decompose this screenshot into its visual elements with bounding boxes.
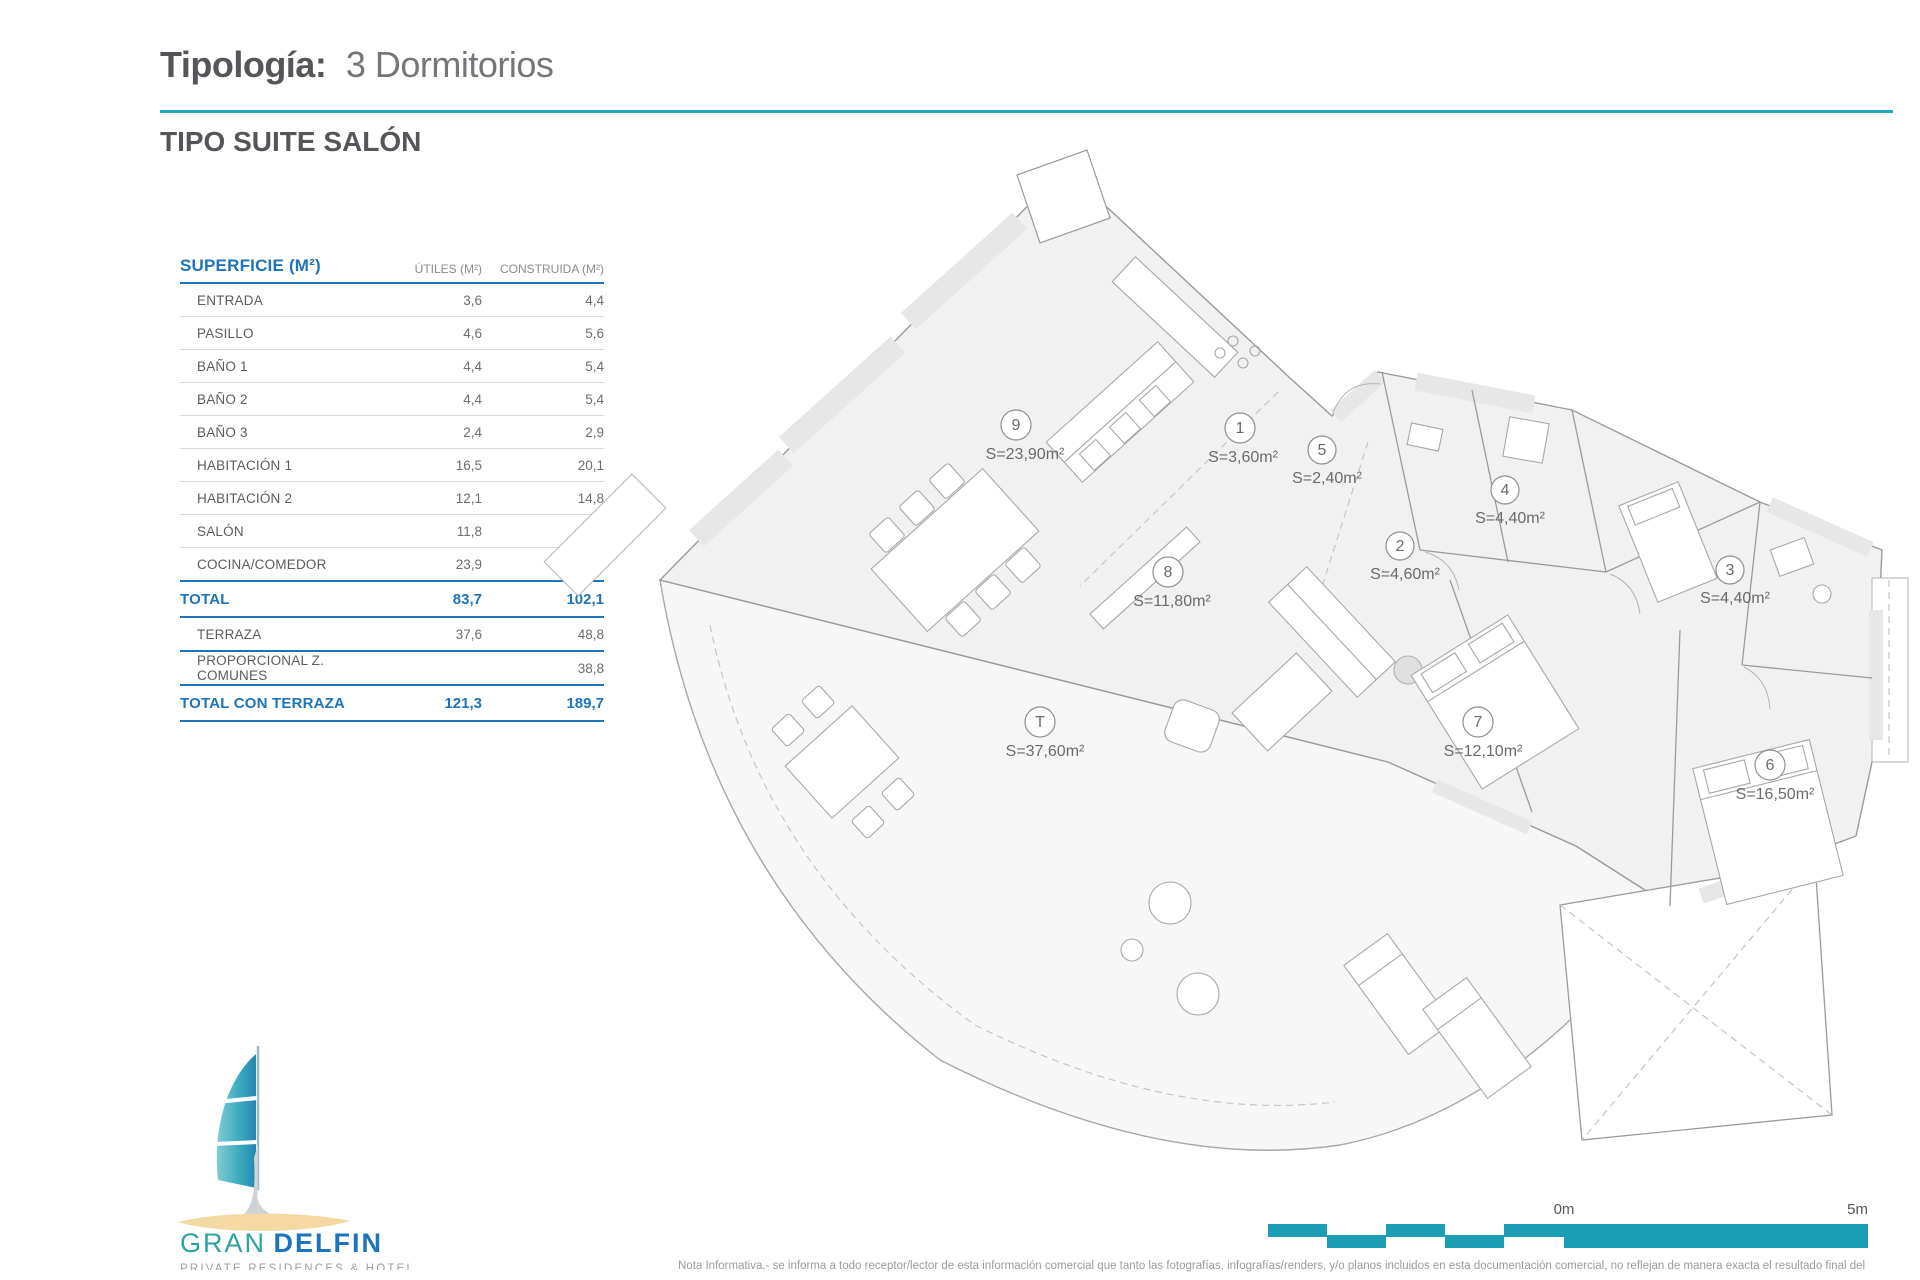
terrace-chair	[1149, 882, 1191, 924]
room-area: S=12,10m²	[1444, 743, 1523, 760]
brochure-page: { "header": { "title_label": "Tipología:…	[0, 0, 1920, 1280]
terrace-side-table	[1121, 939, 1143, 961]
left-ledge	[544, 474, 666, 596]
page-title-value: 3 Dormitorios	[346, 44, 554, 85]
room-number: T	[1035, 714, 1045, 731]
scale-five-label: 5m	[1847, 1201, 1868, 1218]
room-area: S=11,80m²	[1133, 593, 1211, 610]
page-title: Tipología: 3 Dormitorios	[160, 44, 553, 86]
logo-gran: GRAN	[180, 1228, 266, 1258]
scale-zero-label: 0m	[1554, 1201, 1575, 1218]
room-number: 9	[1012, 417, 1021, 434]
room-number: 7	[1474, 714, 1483, 731]
gran-delfin-logo: GRAN DELFIN PRIVATE RESIDENCES & HOTEL	[150, 1040, 450, 1270]
page-subtitle: TIPO SUITE SALÓN	[160, 126, 421, 158]
page-title-label: Tipología:	[160, 44, 326, 85]
logo-delfin: DELFIN	[274, 1228, 384, 1258]
logo-wordmark: GRAN DELFIN	[180, 1228, 383, 1258]
sail-tower-icon	[178, 1046, 350, 1231]
x-box	[1560, 862, 1832, 1140]
room-number: 5	[1318, 442, 1327, 459]
room-area: S=23,90m²	[986, 446, 1065, 463]
room-area: S=4,40m²	[1475, 510, 1545, 527]
room-area: S=3,60m²	[1208, 449, 1278, 466]
room-area: S=4,60m²	[1370, 566, 1440, 583]
scale-bar-segments	[1268, 1224, 1868, 1248]
floor-plan: 9 S=23,90m² 1 S=3,60m² 5 S=2,40m² 4 S=4,…	[520, 110, 1920, 1170]
room-area: S=37,60m²	[1006, 743, 1085, 760]
room-area: S=2,40m²	[1292, 470, 1362, 487]
room-number: 8	[1164, 564, 1173, 581]
room-area: S=16,50m²	[1736, 786, 1815, 803]
scale-bar: 0m 5m	[1180, 1198, 1890, 1268]
disclaimer-note: Nota Informativa.- se informa a todo rec…	[678, 1260, 1920, 1272]
room-number: 3	[1726, 562, 1735, 579]
shower	[1503, 417, 1549, 463]
room-number: 4	[1501, 482, 1510, 499]
col-utiles: ÚTILES (M²)	[390, 262, 482, 276]
room-number: 6	[1766, 757, 1775, 774]
table-title: SUPERFICIE (M²)	[180, 256, 390, 276]
toilet	[1813, 585, 1831, 603]
terrace-chair	[1177, 973, 1219, 1015]
room-area: S=4,40m²	[1700, 590, 1770, 607]
room-number: 1	[1236, 420, 1245, 437]
logo-tagline: PRIVATE RESIDENCES & HOTEL	[180, 1263, 415, 1270]
room-number: 2	[1396, 538, 1405, 555]
